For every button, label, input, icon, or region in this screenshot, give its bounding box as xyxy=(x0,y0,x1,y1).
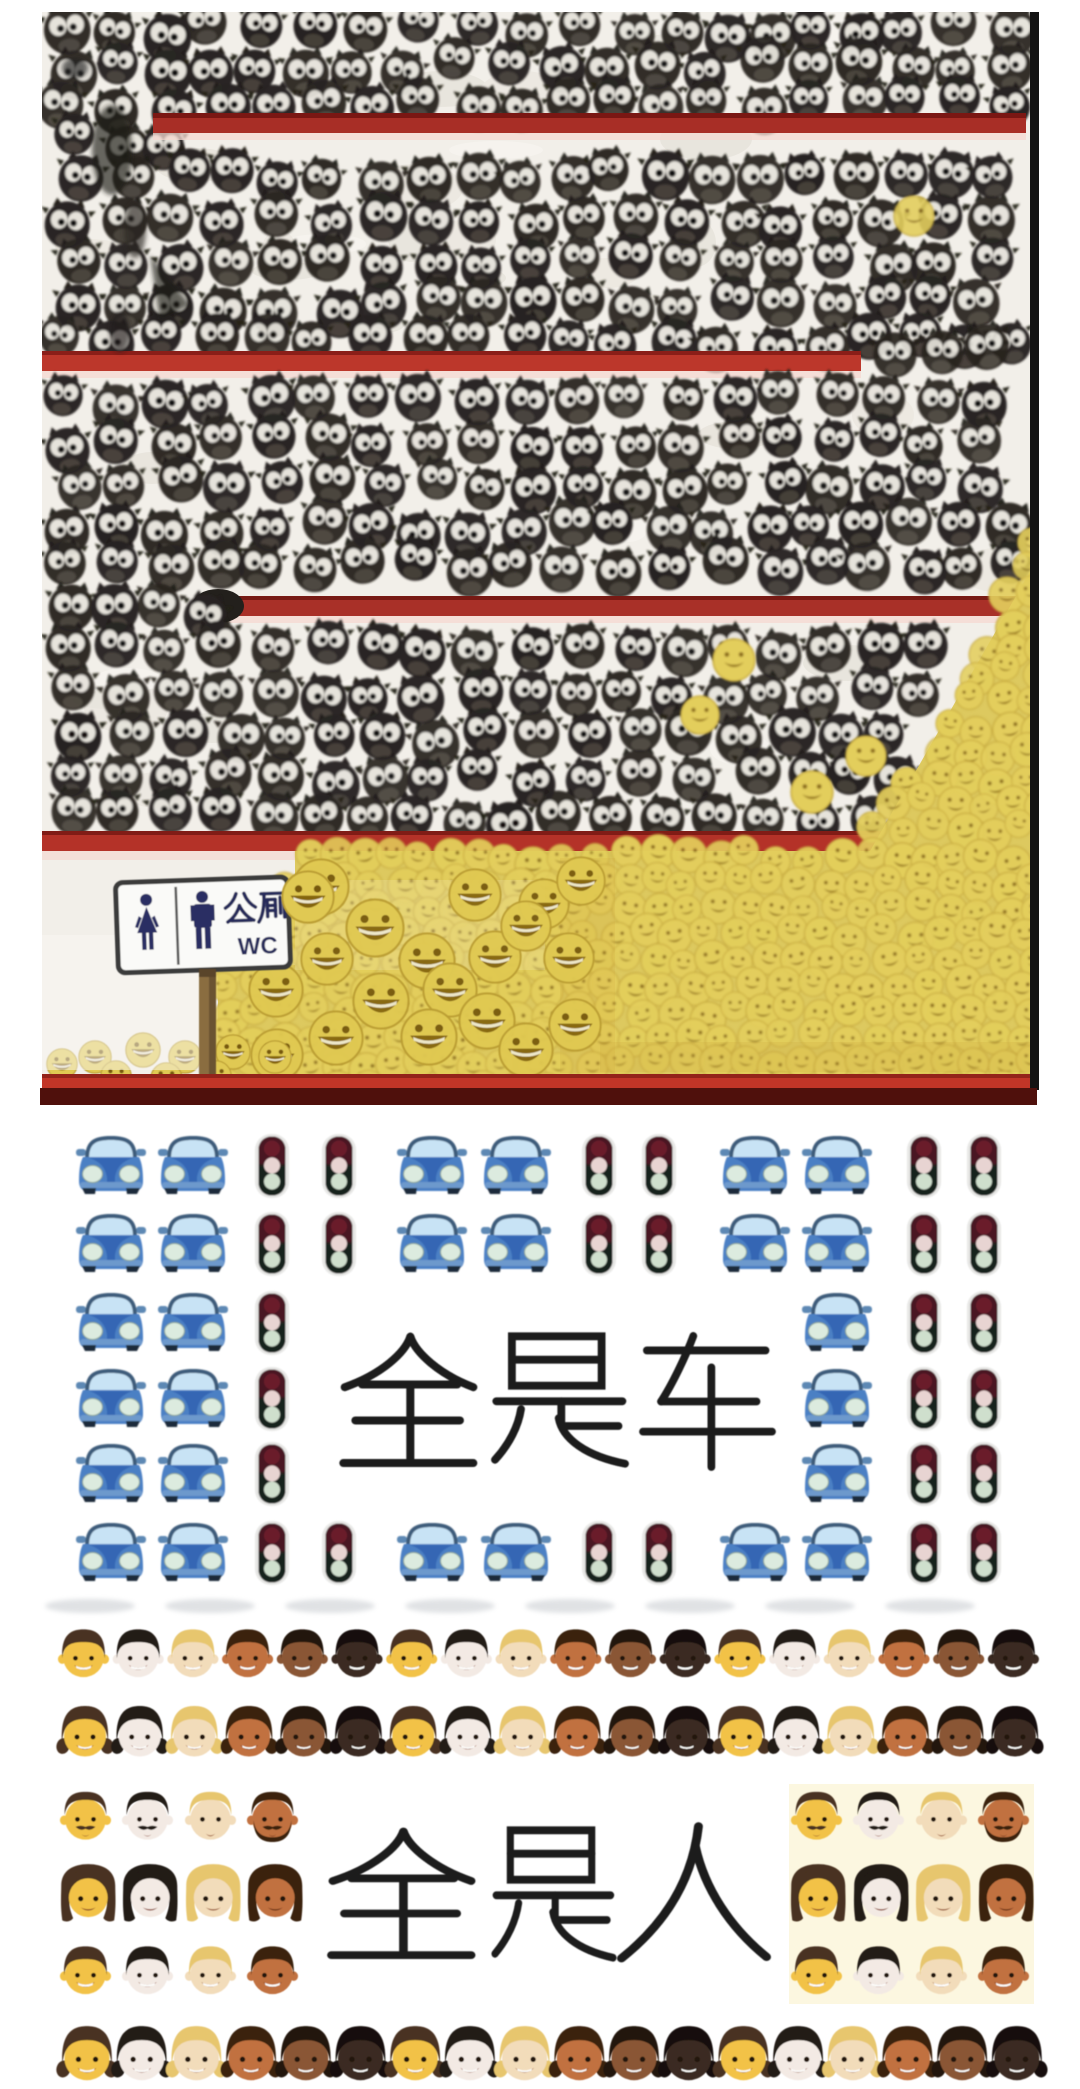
svg-text:WC: WC xyxy=(237,932,278,960)
